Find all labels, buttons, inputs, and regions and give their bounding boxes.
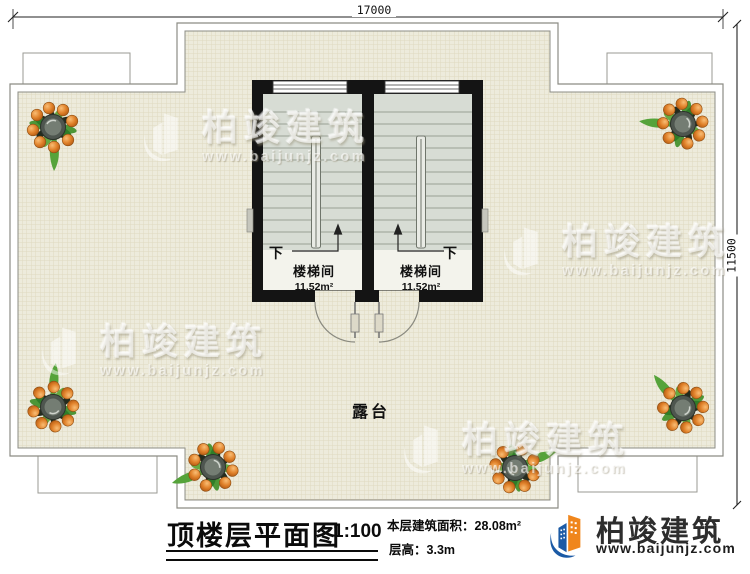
dimension-top-label: 17000 <box>352 4 396 17</box>
room-name: 楼梯间 <box>390 261 452 280</box>
pilaster-right <box>482 209 488 232</box>
brand-website: www.baijunjz.com <box>596 540 736 556</box>
drawing-scale: 1:100 <box>333 521 382 543</box>
room-area: 11.52m² <box>390 281 452 293</box>
floor-plan-canvas <box>0 0 750 569</box>
pilaster-left <box>247 209 253 232</box>
roof-outline-top-left <box>23 53 130 84</box>
floor-height-label: 层高： <box>389 543 427 557</box>
floor-area-line: 本层建筑面积：28.08m² <box>387 515 521 534</box>
roof-outline-bottom-right <box>578 456 697 492</box>
floor-height-value: 3.3m <box>427 543 456 557</box>
floor-height-line: 层高：3.3m <box>389 539 455 558</box>
stairwell-left-label: 楼梯间 11.52m² <box>283 261 345 293</box>
title-underline <box>166 550 378 561</box>
drawing-title: 顶楼层平面图 <box>167 514 341 553</box>
stair-down-label-left: 下 <box>269 243 283 263</box>
stair-down-label-right: 下 <box>443 243 457 263</box>
floor-area-label: 本层建筑面积： <box>387 519 475 533</box>
floor-plan-page: 柏竣建筑 www.baijunjz.com 柏竣建筑 www.baijunjz.… <box>0 0 750 569</box>
stair-railing-left <box>312 136 321 248</box>
stair-window-right <box>385 81 459 93</box>
stairwell-right-label: 楼梯间 11.52m² <box>390 261 452 293</box>
roof-outline-top-right <box>607 53 712 84</box>
terrace-label: 露台 <box>352 398 390 422</box>
stair-railing-right <box>417 136 426 248</box>
room-name: 楼梯间 <box>283 261 345 280</box>
title-block: 顶楼层平面图 1:100 本层建筑面积：28.08m² 层高：3.3m 柏竣建筑… <box>0 512 750 569</box>
room-area: 11.52m² <box>283 281 345 293</box>
brand-logo-icon <box>543 507 595 565</box>
stair-window-left <box>273 81 347 93</box>
floor-area-value: 28.08m² <box>475 519 522 533</box>
roof-outline-bottom-left <box>38 456 157 493</box>
dimension-right-label: 11500 <box>726 235 739 277</box>
